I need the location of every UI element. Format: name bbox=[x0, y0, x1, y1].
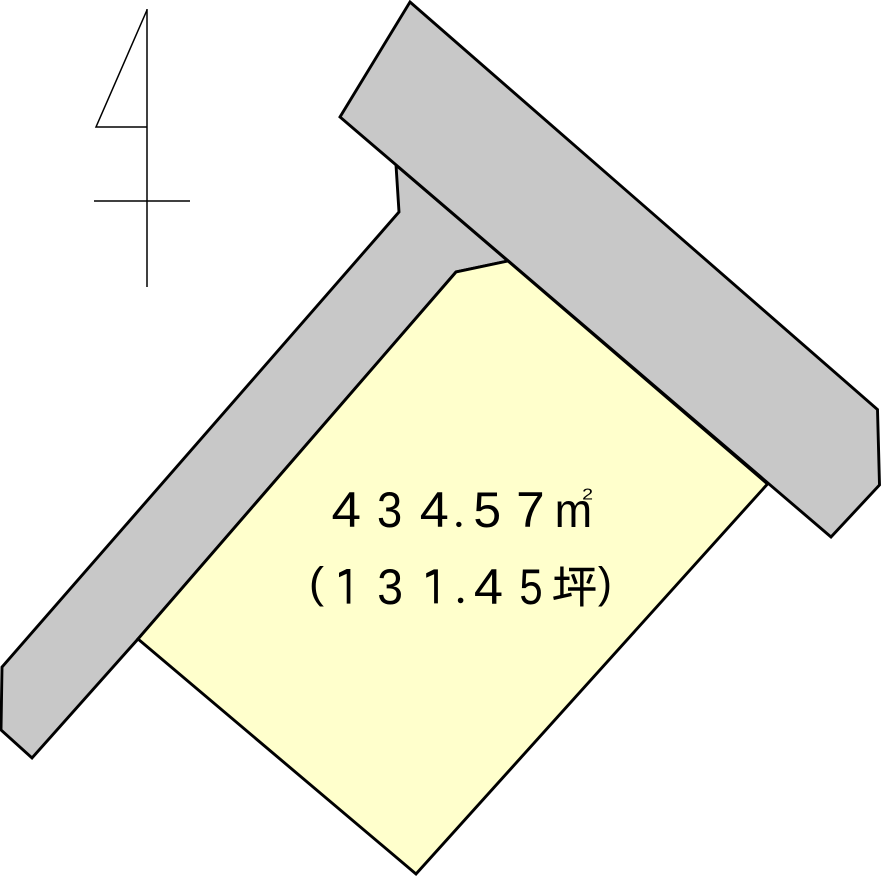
svg-text:(: ( bbox=[309, 560, 325, 608]
svg-text:2: 2 bbox=[582, 487, 593, 504]
svg-text:4: 4 bbox=[332, 482, 361, 538]
svg-text:5: 5 bbox=[473, 482, 501, 538]
svg-text:7: 7 bbox=[516, 482, 545, 538]
svg-text:3: 3 bbox=[377, 482, 402, 538]
svg-text:4: 4 bbox=[420, 482, 449, 538]
svg-text:5: 5 bbox=[519, 559, 542, 615]
svg-text:3: 3 bbox=[377, 559, 403, 615]
svg-text:4: 4 bbox=[474, 559, 503, 615]
svg-text:): ) bbox=[598, 560, 612, 608]
